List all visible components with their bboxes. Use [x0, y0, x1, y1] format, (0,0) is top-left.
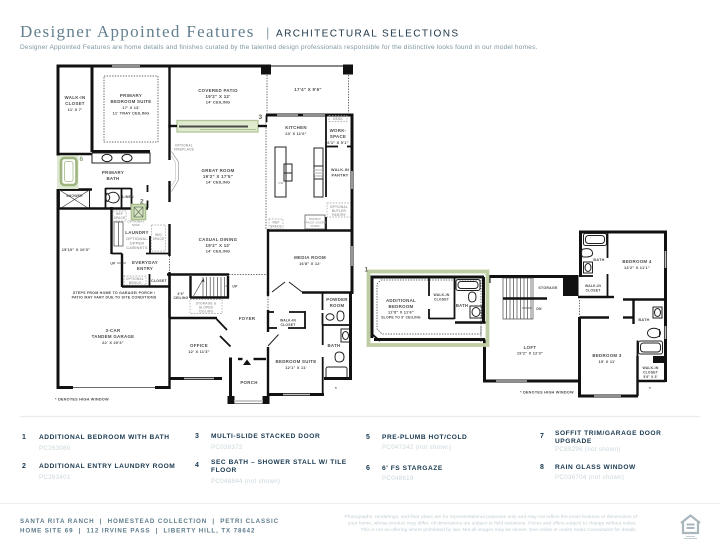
svg-text:PC89296 (not shown): PC89296 (not shown): [555, 446, 621, 453]
svg-text:GREAT ROOM: GREAT ROOM: [202, 168, 235, 173]
svg-text:6: 6: [366, 465, 370, 472]
svg-text:UPGRADE: UPGRADE: [555, 438, 592, 445]
svg-text:15' X 11': 15' X 11': [598, 359, 615, 364]
svg-text:3: 3: [259, 114, 263, 121]
svg-text:LINEN: LINEN: [122, 195, 134, 199]
svg-text:1: 1: [365, 267, 369, 274]
svg-text:CLOSET: CLOSET: [151, 279, 167, 283]
svg-text:WALK-IN: WALK-IN: [642, 366, 658, 370]
svg-text:CABINETS: CABINETS: [126, 245, 148, 250]
svg-text:DW: DW: [278, 181, 283, 185]
svg-text:BATH: BATH: [327, 343, 340, 348]
svg-text:22' X 20'3": 22' X 20'3": [102, 340, 124, 345]
svg-text:BEDROOM 4: BEDROOM 4: [622, 259, 652, 264]
svg-text:STEPS FROM HOME TO GARAGE/ POR: STEPS FROM HOME TO GARAGE/ PORCH /: [73, 291, 155, 295]
svg-text:PORCH: PORCH: [240, 380, 257, 385]
svg-text:SEC BATH – SHOWER STALL W/ TIL: SEC BATH – SHOWER STALL W/ TILE: [211, 459, 347, 466]
svg-text:PC038372: PC038372: [211, 444, 243, 451]
svg-text:BEDROOM SUITE: BEDROOM SUITE: [111, 99, 152, 104]
svg-text:KITCHEN: KITCHEN: [285, 125, 307, 130]
svg-text:* DENOTES HIGH WINDOW: * DENOTES HIGH WINDOW: [55, 398, 109, 402]
svg-text:DN: DN: [536, 307, 542, 311]
svg-text:COVERED PATIO: COVERED PATIO: [198, 88, 238, 93]
svg-text:2: 2: [22, 463, 26, 470]
svg-text:WORK-: WORK-: [330, 128, 347, 133]
svg-text:SINK: SINK: [132, 223, 141, 227]
svg-text:|: |: [266, 25, 269, 40]
svg-text:TANDEM GARAGE: TANDEM GARAGE: [92, 334, 135, 339]
svg-text:3: 3: [195, 433, 199, 440]
svg-text:19'2" X 17'5": 19'2" X 17'5": [203, 174, 233, 179]
svg-text:BEDROOM: BEDROOM: [388, 304, 413, 309]
svg-text:Designer Appointed Features: Designer Appointed Features: [20, 22, 255, 41]
svg-text:19'2" X 12': 19'2" X 12': [205, 243, 230, 248]
svg-text:PATIO MAY VARY DUE TO SITE CON: PATIO MAY VARY DUE TO SITE CONDITIONS: [72, 296, 157, 300]
svg-text:CEILING: CEILING: [174, 296, 189, 300]
svg-text:13'2" X 11'1": 13'2" X 11'1": [624, 265, 650, 270]
svg-text:WALK-IN: WALK-IN: [433, 293, 449, 297]
svg-text:BATH: BATH: [456, 303, 468, 308]
svg-text:6'1" X 5'1": 6'1" X 5'1": [327, 140, 348, 145]
svg-text:OFFICE: OFFICE: [190, 343, 208, 348]
svg-text:ARCHITECTURAL SELECTIONS: ARCHITECTURAL SELECTIONS: [276, 29, 459, 40]
svg-text:your home, whose product may d: your home, whose product may differ. All…: [348, 521, 637, 527]
svg-text:6' FS STARGAZE: 6' FS STARGAZE: [382, 465, 443, 472]
svg-text:BEDROOM SUITE: BEDROOM SUITE: [276, 359, 317, 364]
svg-text:ADDITIONAL ENTRY LAUNDRY ROOM: ADDITIONAL ENTRY LAUNDRY ROOM: [39, 463, 175, 470]
svg-text:WALK-IN: WALK-IN: [65, 95, 86, 100]
svg-text:SLOPE TO 9' CEILING: SLOPE TO 9' CEILING: [381, 316, 421, 320]
svg-text:ENTRY: ENTRY: [137, 266, 153, 271]
svg-text:12'1" X 11': 12'1" X 11': [285, 365, 306, 370]
svg-text:MULTI-SLIDE STACKED DOOR: MULTI-SLIDE STACKED DOOR: [211, 433, 320, 440]
svg-text:SPACE: SPACE: [114, 216, 126, 220]
svg-text:This is not an offering where: This is not an offering where prohibited…: [361, 527, 637, 533]
svg-text:BATH: BATH: [638, 318, 649, 322]
svg-text:Photographs, renderings, and f: Photographs, renderings, and floor plans…: [344, 514, 637, 520]
svg-text:* DENOTES HIGH WINDOW: * DENOTES HIGH WINDOW: [520, 391, 574, 395]
svg-text:RAIN GLASS WINDOW: RAIN GLASS WINDOW: [555, 464, 636, 471]
svg-text:16'8" X 12': 16'8" X 12': [299, 261, 321, 266]
svg-text:UP: UP: [232, 285, 238, 289]
svg-text:UP: UP: [110, 262, 116, 266]
svg-text:FLOOR: FLOOR: [211, 467, 237, 474]
svg-text:WALK-IN: WALK-IN: [280, 319, 296, 323]
svg-text:OVEN: OVEN: [315, 175, 323, 178]
svg-text:ADDITIONAL BEDROOM WITH BATH: ADDITIONAL BEDROOM WITH BATH: [39, 434, 170, 441]
svg-text:BATH: BATH: [106, 176, 119, 181]
svg-text:CASUAL DINING: CASUAL DINING: [199, 237, 238, 242]
svg-text:CLOSET: CLOSET: [643, 371, 659, 375]
svg-text:SPACE: SPACE: [270, 225, 282, 229]
svg-text:4: 4: [195, 462, 199, 469]
svg-text:ADDITIONAL: ADDITIONAL: [386, 298, 416, 303]
svg-text:PANTRY: PANTRY: [332, 213, 347, 217]
svg-text:11' TRAY CEILING: 11' TRAY CEILING: [113, 111, 150, 116]
svg-text:8: 8: [540, 464, 544, 471]
svg-text:BATH: BATH: [593, 258, 604, 262]
svg-text:PC048844 (not shown): PC048844 (not shown): [211, 478, 280, 485]
svg-text:PC036704 (not shown): PC036704 (not shown): [555, 474, 624, 481]
svg-text:2: 2: [140, 199, 144, 206]
svg-text:14' CEILING: 14' CEILING: [206, 100, 231, 105]
svg-text:CLOSET: CLOSET: [585, 289, 601, 293]
svg-text:PRE-PLUMB HOT/COLD: PRE-PLUMB HOT/COLD: [382, 434, 467, 441]
svg-text:7: 7: [540, 433, 544, 440]
svg-text:15'10" X 10'3": 15'10" X 10'3": [62, 247, 91, 252]
svg-text:5: 5: [366, 434, 370, 441]
svg-text:MEDIA ROOM: MEDIA ROOM: [294, 255, 326, 260]
svg-text:LAUNDRY: LAUNDRY: [125, 230, 148, 235]
svg-text:11' X 7': 11' X 7': [68, 107, 83, 112]
svg-text:CLOSET: CLOSET: [65, 101, 85, 106]
svg-text:SANTA RITA RANCH | HOMESTEAD: SANTA RITA RANCH | HOMESTEAD COLLECTION …: [20, 518, 279, 525]
svg-text:17'4" X 9'6": 17'4" X 9'6": [294, 87, 321, 92]
svg-text:PRIMARY: PRIMARY: [120, 93, 142, 98]
svg-text:1: 1: [22, 434, 26, 441]
svg-text:SPACE: SPACE: [330, 134, 346, 139]
svg-text:LOFT: LOFT: [524, 345, 537, 350]
svg-text:EVERYDAY: EVERYDAY: [132, 260, 158, 265]
svg-text:3-CAR: 3-CAR: [106, 328, 121, 333]
svg-text:PC263060: PC263060: [39, 445, 71, 452]
svg-text:6: 6: [80, 156, 84, 163]
svg-text:SPACE: SPACE: [153, 237, 165, 241]
svg-text:DESK: DESK: [333, 117, 343, 121]
svg-text:WALK-IN: WALK-IN: [331, 167, 349, 172]
svg-text:*: *: [335, 386, 337, 391]
svg-text:CEILING: CEILING: [199, 310, 214, 314]
svg-text:CLOSET: CLOSET: [280, 323, 296, 327]
svg-text:12' X 11'3": 12' X 11'3": [188, 349, 209, 354]
svg-text:PC047242 (not shown): PC047242 (not shown): [382, 444, 451, 451]
svg-text:5'6" X 5': 5'6" X 5': [643, 375, 657, 379]
svg-text:17' X 13': 17' X 13': [122, 105, 139, 110]
svg-text:19'2" X 12'3": 19'2" X 12'3": [517, 351, 543, 356]
svg-text:CLOSET: CLOSET: [434, 298, 450, 302]
svg-text:23' X 11'6": 23' X 11'6": [285, 131, 306, 136]
svg-text:BENCH: BENCH: [129, 281, 142, 285]
svg-text:POWDER: POWDER: [326, 297, 348, 302]
svg-text:*: *: [649, 386, 651, 391]
svg-text:WALK-IN: WALK-IN: [585, 284, 601, 288]
svg-text:BEDROOM 3: BEDROOM 3: [592, 353, 622, 358]
svg-text:PC048619: PC048619: [382, 475, 414, 482]
svg-text:PC263401: PC263401: [39, 474, 71, 481]
svg-text:HOME SITE 69 | 112 IRVINE PA: HOME SITE 69 | 112 IRVINE PASS | LIBERTY…: [20, 528, 255, 535]
svg-text:SOFFIT TRIM/GARAGE DOOR: SOFFIT TRIM/GARAGE DOOR: [555, 430, 661, 437]
svg-text:PRIMARY: PRIMARY: [102, 170, 124, 175]
svg-text:FOYER: FOYER: [239, 316, 256, 321]
svg-text:12'8" X 11'6": 12'8" X 11'6": [388, 310, 414, 315]
svg-text:PANTRY: PANTRY: [332, 173, 349, 178]
svg-text:19'2" X 12': 19'2" X 12': [205, 94, 230, 99]
svg-text:SHOWER: SHOWER: [66, 194, 83, 198]
svg-text:STORAGE: STORAGE: [538, 286, 558, 290]
svg-text:ROOM: ROOM: [330, 303, 345, 308]
svg-text:14' CEILING: 14' CEILING: [206, 249, 231, 254]
svg-text:Designer Appointed Features ar: Designer Appointed Features are home det…: [20, 44, 538, 51]
svg-text:14' CEILING: 14' CEILING: [206, 180, 231, 185]
svg-text:FIREPLACE: FIREPLACE: [174, 148, 194, 152]
svg-text:OVEN: OVEN: [311, 224, 320, 228]
